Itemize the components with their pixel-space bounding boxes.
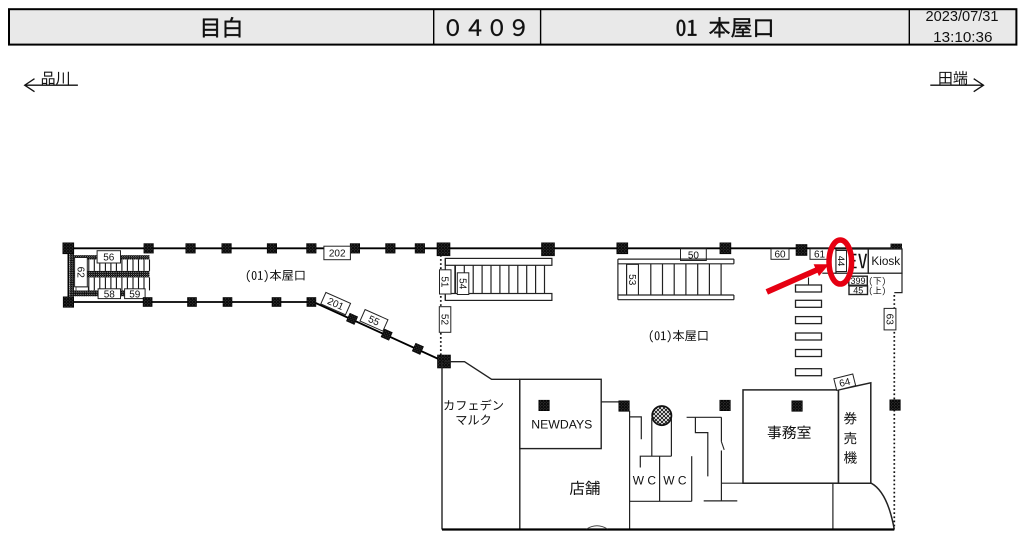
svg-text:59: 59 <box>129 289 141 300</box>
svg-text:58: 58 <box>104 289 116 300</box>
svg-text:2023/07/31: 2023/07/31 <box>926 9 999 25</box>
svg-text:54: 54 <box>456 278 467 290</box>
svg-text:61: 61 <box>814 250 826 261</box>
svg-text:NEWDAYS: NEWDAYS <box>531 417 592 431</box>
svg-text:45: 45 <box>853 285 863 295</box>
svg-text:44: 44 <box>835 256 846 267</box>
svg-text:Kiosk: Kiosk <box>871 254 900 268</box>
svg-text:63: 63 <box>883 314 894 326</box>
svg-text:399: 399 <box>850 276 865 286</box>
svg-text:W C: W C <box>663 476 686 488</box>
svg-text:53: 53 <box>626 274 637 286</box>
svg-text:60: 60 <box>774 250 786 261</box>
svg-text:13:10:36: 13:10:36 <box>933 30 992 46</box>
svg-text:56: 56 <box>103 252 115 263</box>
svg-text:62: 62 <box>74 267 85 279</box>
svg-text:202: 202 <box>329 249 346 260</box>
svg-text:52: 52 <box>439 314 450 326</box>
svg-text:51: 51 <box>439 276 450 288</box>
svg-text:W C: W C <box>633 476 656 488</box>
